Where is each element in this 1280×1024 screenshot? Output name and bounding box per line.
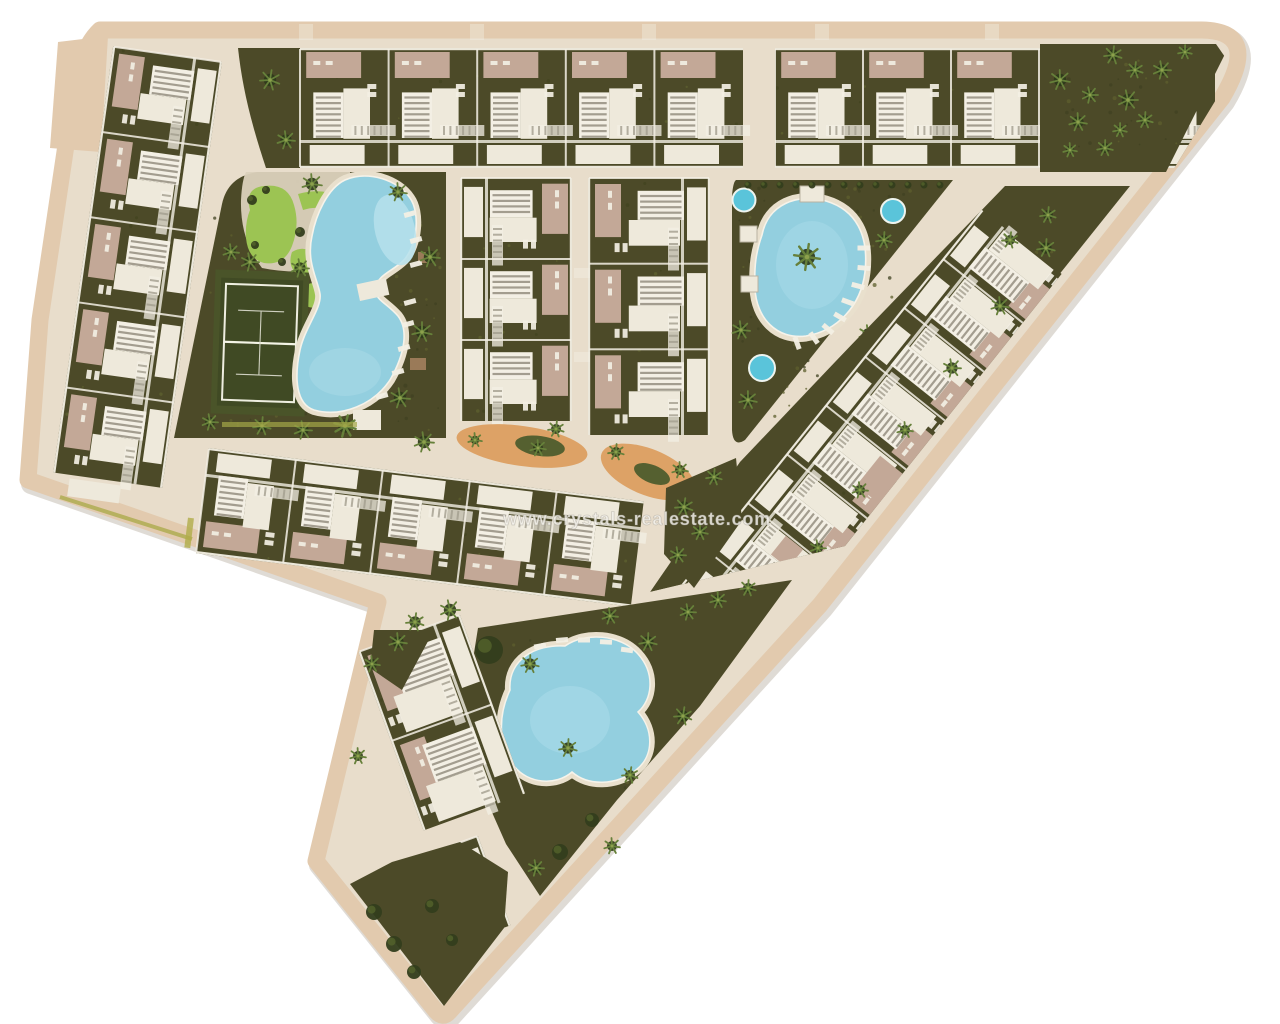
svg-text:www.crystals-realestate.com: www.crystals-realestate.com: [502, 509, 771, 529]
